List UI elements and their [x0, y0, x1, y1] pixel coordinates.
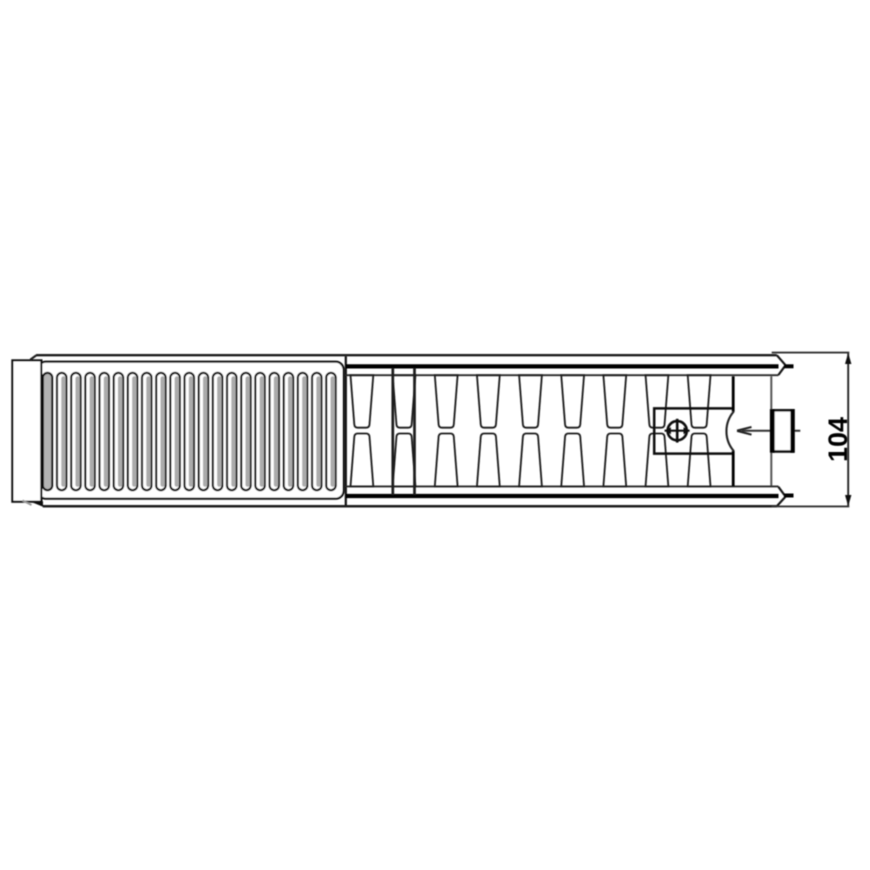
svg-text:104: 104	[823, 417, 853, 462]
